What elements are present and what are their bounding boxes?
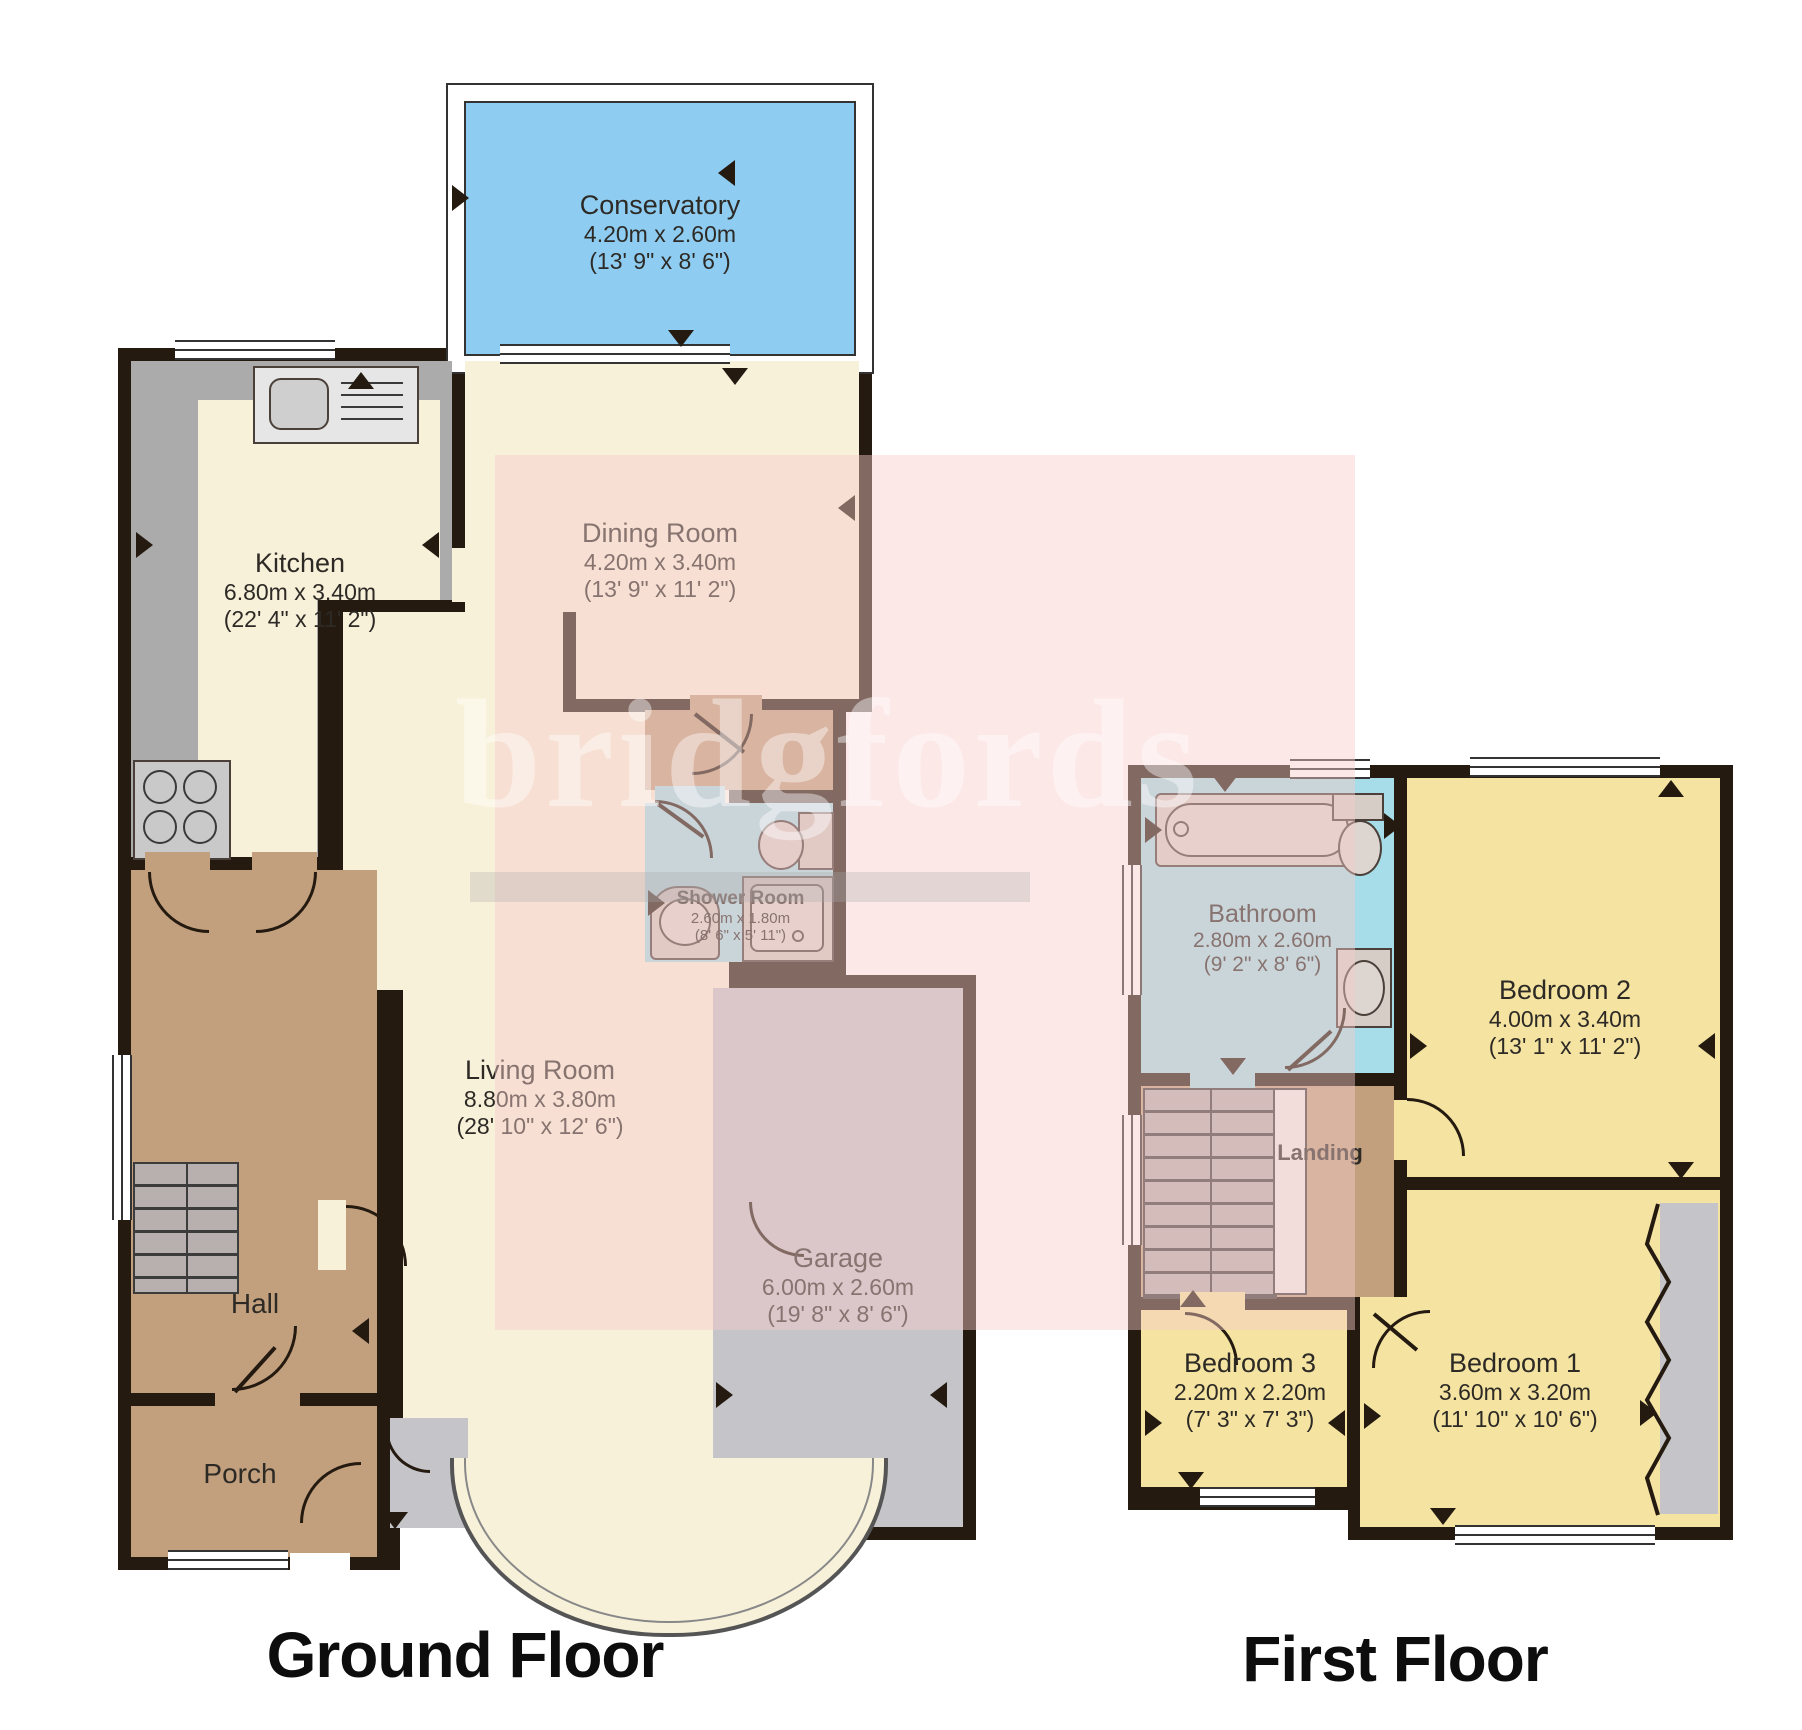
door-opening xyxy=(290,1553,350,1573)
window xyxy=(1290,759,1370,779)
toilet xyxy=(1332,793,1384,821)
garage-label: Garage 6.00m x 2.60m (19' 8" x 8' 6") xyxy=(688,1243,988,1328)
opening-marker-triangle xyxy=(838,495,855,521)
ground-floor-title: Ground Floor xyxy=(165,1618,765,1692)
bedroom2-label: Bedroom 2 4.00m x 3.40m (13' 1" x 11' 2"… xyxy=(1415,975,1715,1060)
staircase xyxy=(133,1162,239,1294)
window xyxy=(175,340,335,360)
opening-marker-triangle xyxy=(1220,1058,1246,1075)
door-opening xyxy=(318,1200,346,1270)
room-living xyxy=(343,612,576,990)
opening-marker-triangle xyxy=(930,1382,947,1408)
staircase-landing-strip xyxy=(1273,1088,1307,1295)
door-opening xyxy=(452,548,465,602)
floorplan-image: Conservatory 4.20m x 2.60m (13' 9" x 8' … xyxy=(0,0,1802,1730)
kitchen-hob xyxy=(133,760,231,860)
window xyxy=(168,1550,288,1570)
dining-room-label: Dining Room 4.20m x 3.40m (13' 9" x 11' … xyxy=(510,518,810,603)
opening-marker-triangle xyxy=(1430,1508,1456,1525)
landing-label: Landing xyxy=(1240,1140,1400,1166)
window xyxy=(1200,1487,1315,1507)
opening-marker-triangle xyxy=(1658,780,1684,797)
opening-marker-triangle xyxy=(716,1382,733,1408)
kitchen-label: Kitchen 6.80m x 3.40m (22' 4" x 11' 2") xyxy=(150,548,450,633)
door-opening xyxy=(252,852,317,874)
opening-marker-triangle xyxy=(718,160,735,186)
window xyxy=(112,1055,132,1220)
staircase xyxy=(1143,1088,1277,1299)
window xyxy=(500,344,730,364)
porch-label: Porch xyxy=(140,1458,340,1490)
window xyxy=(1470,757,1660,777)
bay-window xyxy=(450,1458,888,1637)
door-opening xyxy=(215,1390,300,1410)
opening-marker-triangle xyxy=(1145,817,1162,843)
opening-marker-triangle xyxy=(348,372,374,389)
opening-marker-triangle xyxy=(452,185,469,211)
opening-marker-triangle xyxy=(1384,813,1401,839)
door-opening xyxy=(145,852,210,874)
bedroom1-label: Bedroom 1 3.60m x 3.20m (11' 10" x 10' 6… xyxy=(1365,1348,1665,1433)
window xyxy=(1455,1525,1655,1545)
opening-marker-triangle xyxy=(1668,1162,1694,1179)
opening-marker-triangle xyxy=(722,368,748,385)
wall xyxy=(563,612,576,712)
bedroom3-label: Bedroom 3 2.20m x 2.20m (7' 3" x 7' 3") xyxy=(1100,1348,1400,1433)
first-floor-title: First Floor xyxy=(1095,1622,1695,1696)
toilet xyxy=(758,820,804,870)
kitchen-sink xyxy=(253,366,419,444)
opening-marker-triangle xyxy=(1180,1290,1206,1307)
opening-marker-triangle xyxy=(352,1318,369,1344)
bathtub xyxy=(1155,793,1359,867)
hall-label: Hall xyxy=(155,1288,355,1320)
conservatory-label: Conservatory 4.20m x 2.60m (13' 9" x 8' … xyxy=(510,190,810,275)
shower-room-label: Shower Room 2.60m x 1.80m (8' 6" x 5' 11… xyxy=(648,888,833,944)
opening-marker-triangle xyxy=(1178,1472,1204,1489)
bathroom-label: Bathroom 2.80m x 2.60m (9' 2" x 8' 6") xyxy=(1115,900,1410,977)
opening-marker-triangle xyxy=(668,330,694,347)
opening-marker-triangle xyxy=(382,1512,408,1529)
living-room-label: Living Room 8.80m x 3.80m (28' 10" x 12'… xyxy=(390,1055,690,1140)
toilet xyxy=(1338,820,1382,876)
window xyxy=(1122,1115,1142,1245)
opening-marker-triangle xyxy=(1212,775,1238,792)
